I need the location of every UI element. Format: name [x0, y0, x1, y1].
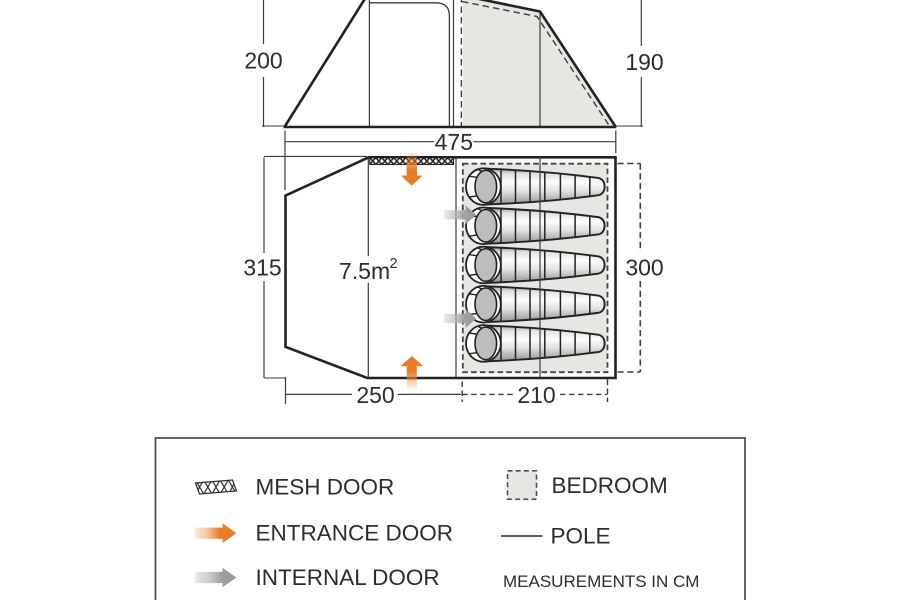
svg-text:MESH DOOR: MESH DOOR	[256, 475, 395, 500]
svg-text:MEASUREMENTS IN CM: MEASUREMENTS IN CM	[503, 572, 699, 591]
svg-text:ENTRANCE DOOR: ENTRANCE DOOR	[256, 521, 454, 546]
svg-text:300: 300	[625, 255, 663, 281]
svg-text:190: 190	[625, 49, 663, 75]
svg-text:INTERNAL DOOR: INTERNAL DOOR	[256, 565, 440, 590]
svg-text:210: 210	[517, 382, 555, 408]
svg-text:7.5m: 7.5m	[339, 258, 390, 284]
svg-text:315: 315	[243, 255, 281, 281]
svg-text:POLE: POLE	[551, 524, 611, 549]
svg-text:475: 475	[435, 129, 473, 155]
svg-text:BEDROOM: BEDROOM	[552, 473, 668, 498]
svg-text:200: 200	[244, 48, 282, 74]
svg-text:2: 2	[390, 256, 398, 272]
svg-text:250: 250	[356, 382, 394, 408]
